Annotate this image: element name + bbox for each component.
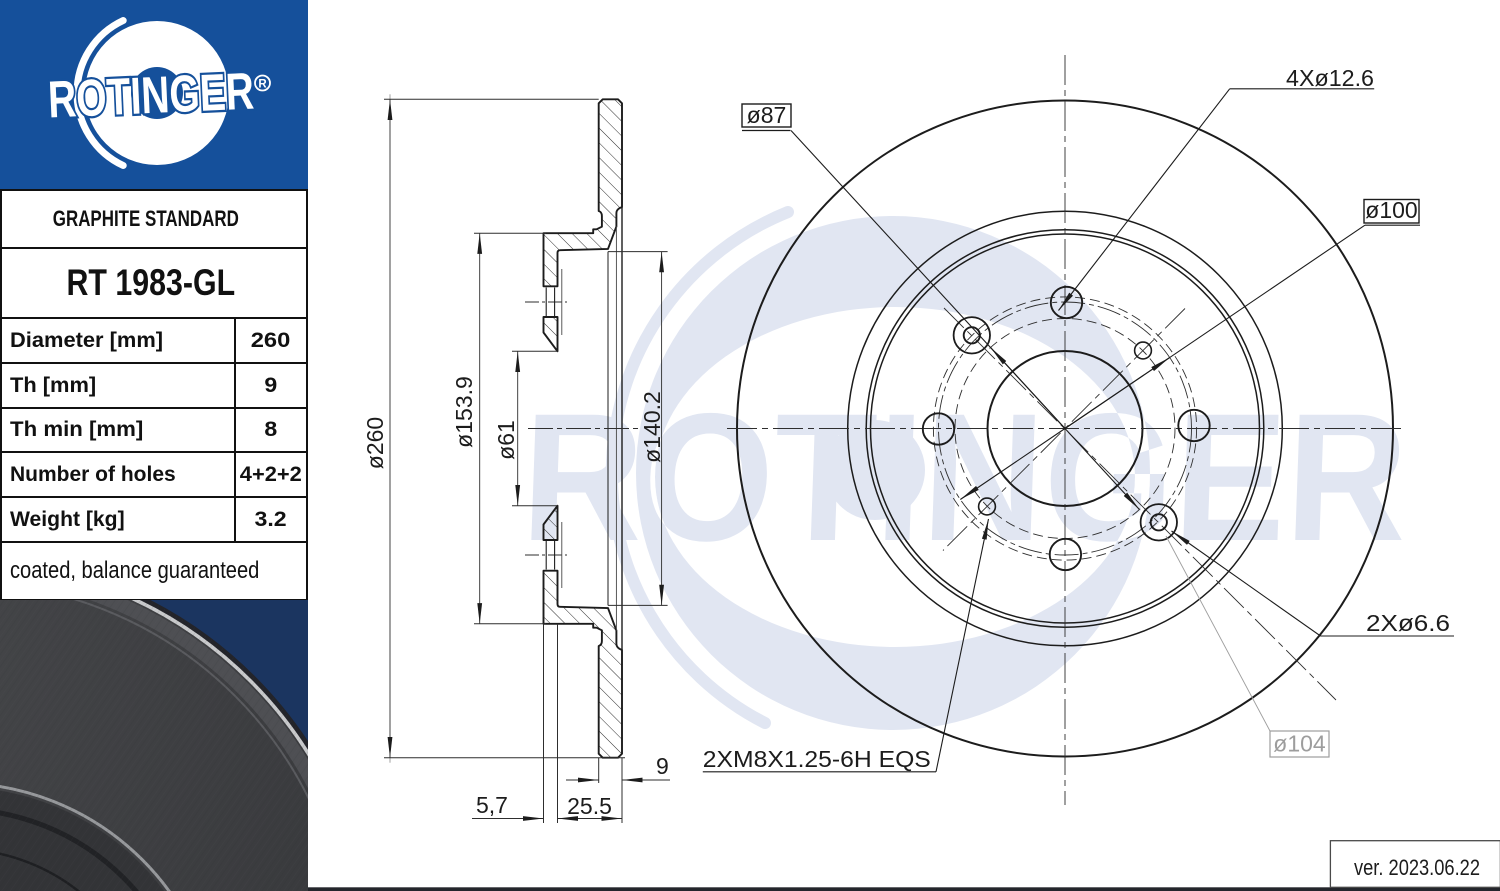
svg-text:4Xø12.6: 4Xø12.6 [1286,65,1374,91]
svg-text:ROTINGER: ROTINGER [47,63,255,130]
svg-text:ø100: ø100 [1365,197,1417,223]
svg-text:ø140.2: ø140.2 [639,391,665,463]
svg-text:R: R [258,79,267,91]
svg-text:9: 9 [656,753,669,779]
svg-text:ø260: ø260 [362,417,388,469]
svg-text:ø104: ø104 [1273,731,1326,757]
svg-text:ver. 2023.06.22: ver. 2023.06.22 [1354,855,1480,880]
svg-text:2XM8X1.25-6H EQS: 2XM8X1.25-6H EQS [703,746,931,772]
svg-text:5,7: 5,7 [476,792,508,818]
svg-text:ø87: ø87 [747,102,787,128]
svg-text:2Xø6.6: 2Xø6.6 [1366,610,1450,636]
svg-text:ø61: ø61 [493,420,519,460]
svg-text:ø153.9: ø153.9 [451,376,477,448]
svg-text:25.5: 25.5 [567,793,612,819]
